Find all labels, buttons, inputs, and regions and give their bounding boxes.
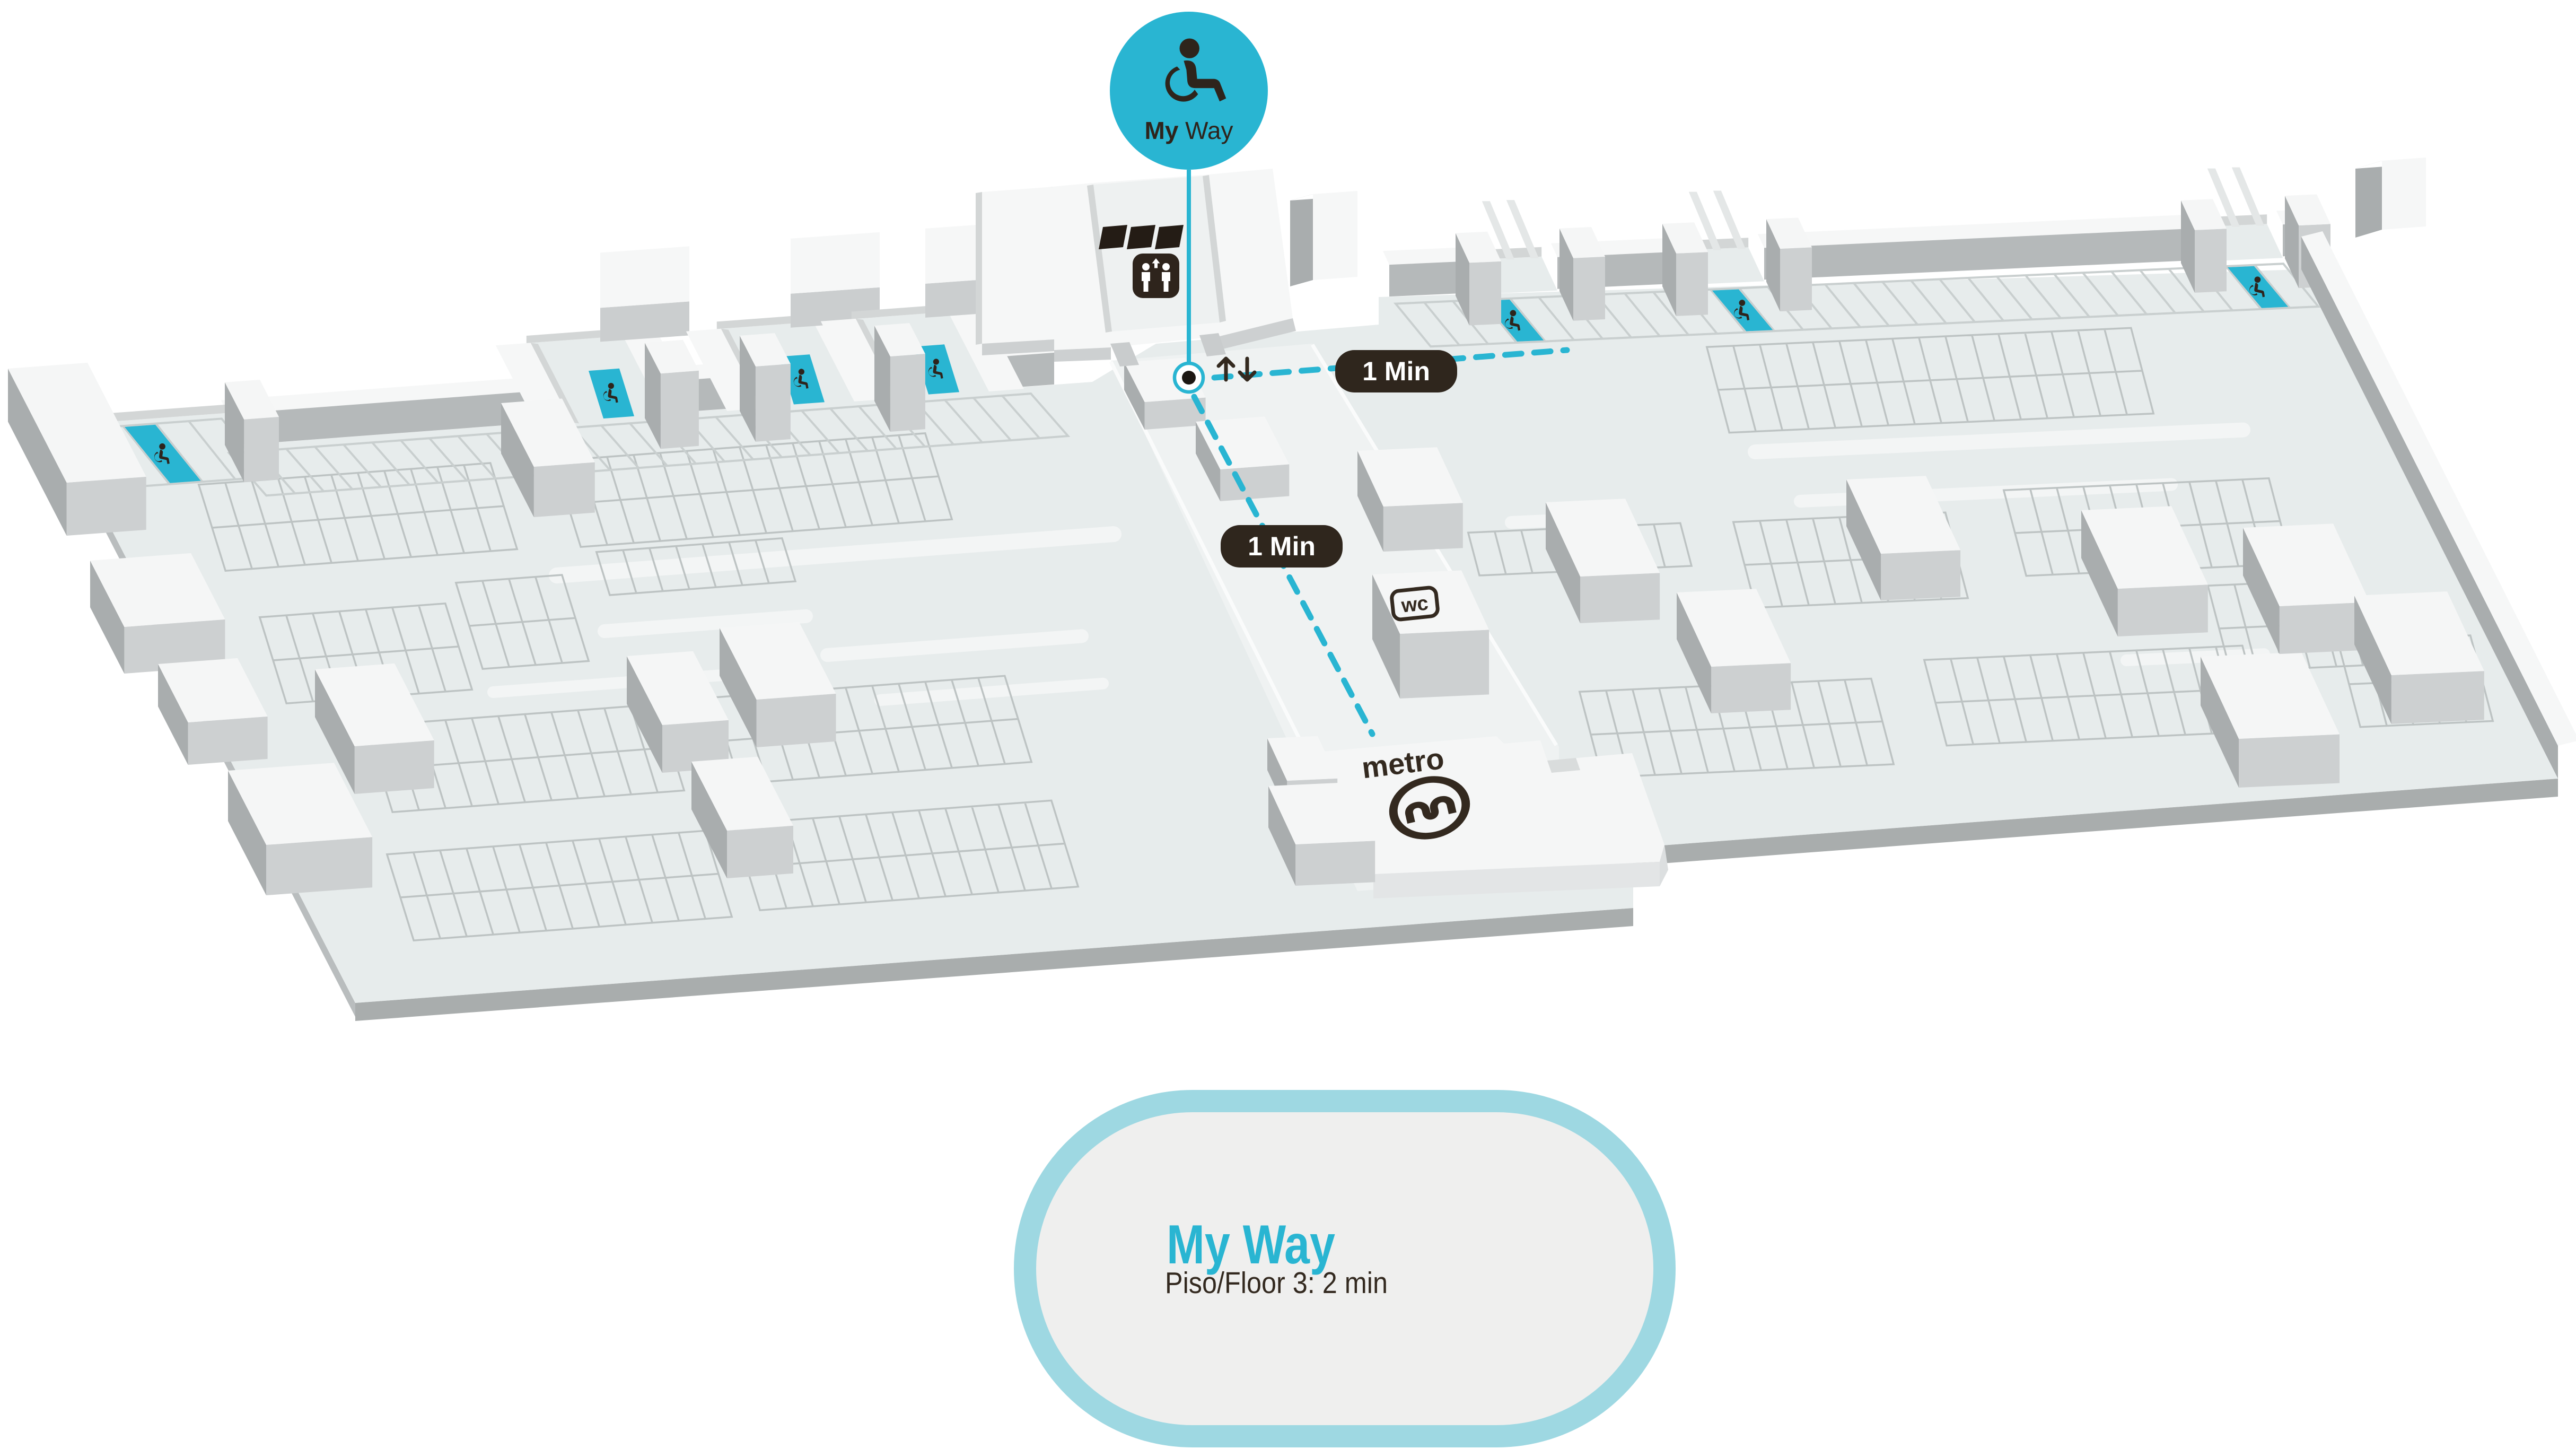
svg-text:Piso/Floor 3: 2 min: Piso/Floor 3: 2 min xyxy=(1165,1266,1388,1300)
svg-text:1 Min: 1 Min xyxy=(1248,531,1316,561)
svg-text:1 Min: 1 Min xyxy=(1362,356,1430,386)
svg-text:wc: wc xyxy=(1400,592,1430,617)
svg-text:My Way: My Way xyxy=(1145,117,1233,144)
